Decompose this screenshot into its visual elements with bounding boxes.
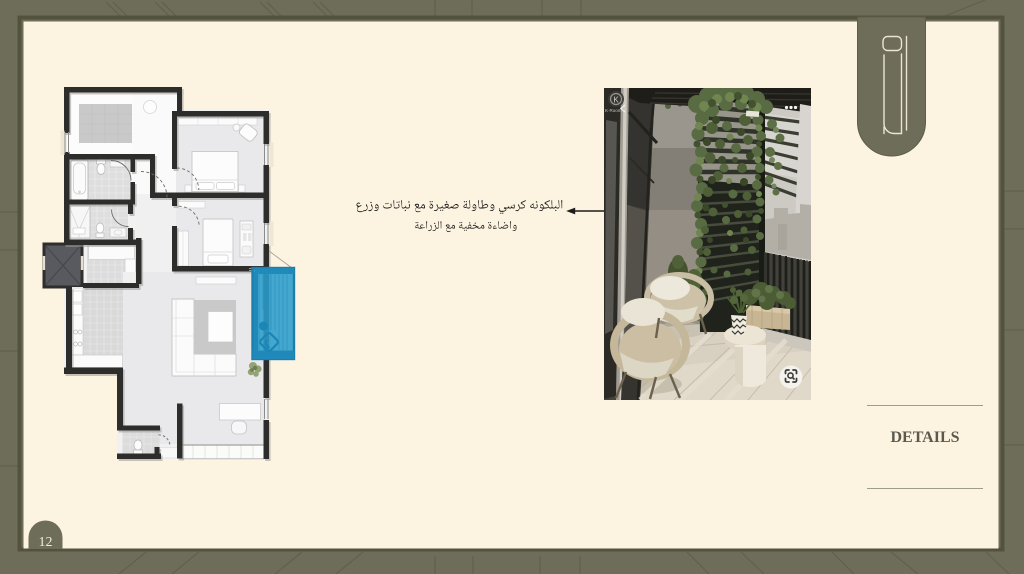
svg-text:12: 12 [39,535,53,550]
svg-text:K·Rooms: K·Rooms [605,108,625,113]
svg-text:DETAILS: DETAILS [890,429,959,446]
svg-text:K: K [613,96,619,105]
